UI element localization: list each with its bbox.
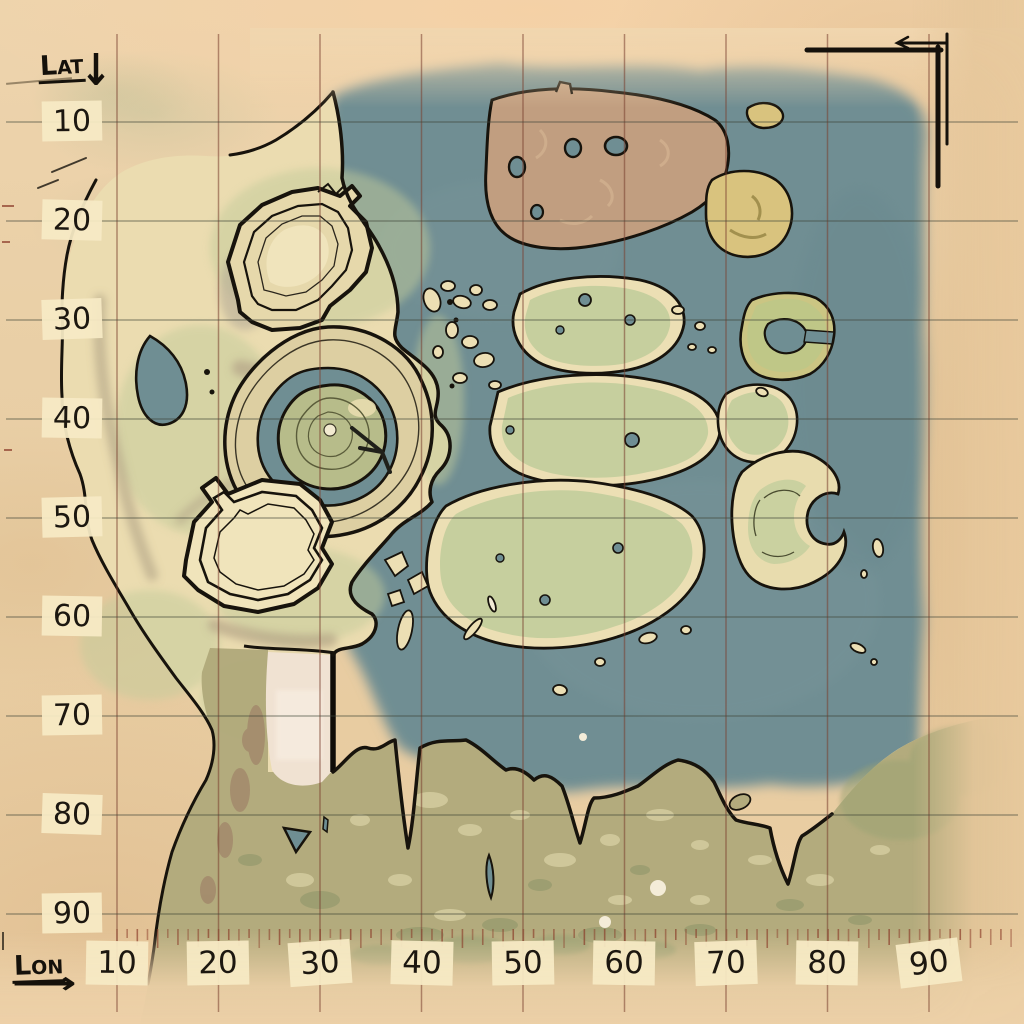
lat-grid-label: 40 — [42, 397, 103, 438]
lat-grid-label: 80 — [41, 793, 102, 835]
lat-grid-label: 10 — [42, 100, 103, 141]
parchment-map: Lat ↓ Lon ⟶ 10 20 30 40 50 60 70 80 90 1… — [0, 0, 1024, 1024]
lat-grid-label: 20 — [41, 199, 102, 241]
lon-grid-label: 70 — [694, 940, 757, 986]
lat-grid-label: 70 — [42, 694, 103, 735]
lat-grid-label: 90 — [42, 892, 103, 933]
lat-grid-label: 30 — [41, 298, 102, 340]
lon-grid-label: 60 — [593, 940, 656, 985]
map-canvas — [0, 0, 1024, 1024]
right-arrow-icon: ⟶ — [12, 966, 77, 1001]
down-arrow-icon: ↓ — [80, 45, 112, 96]
lon-grid-label: 80 — [796, 940, 859, 985]
bay-island — [741, 293, 835, 380]
lon-grid-label: 10 — [86, 940, 149, 985]
lon-grid-label: 30 — [288, 939, 353, 987]
lat-grid-label: 50 — [41, 496, 102, 538]
lat-grid-label: 60 — [42, 595, 103, 636]
lon-grid-label: 20 — [187, 940, 250, 985]
lon-grid-label: 40 — [390, 940, 453, 986]
edge-ticks — [2, 206, 14, 950]
lon-grid-label: 90 — [896, 937, 963, 988]
lon-grid-label: 50 — [492, 940, 555, 985]
